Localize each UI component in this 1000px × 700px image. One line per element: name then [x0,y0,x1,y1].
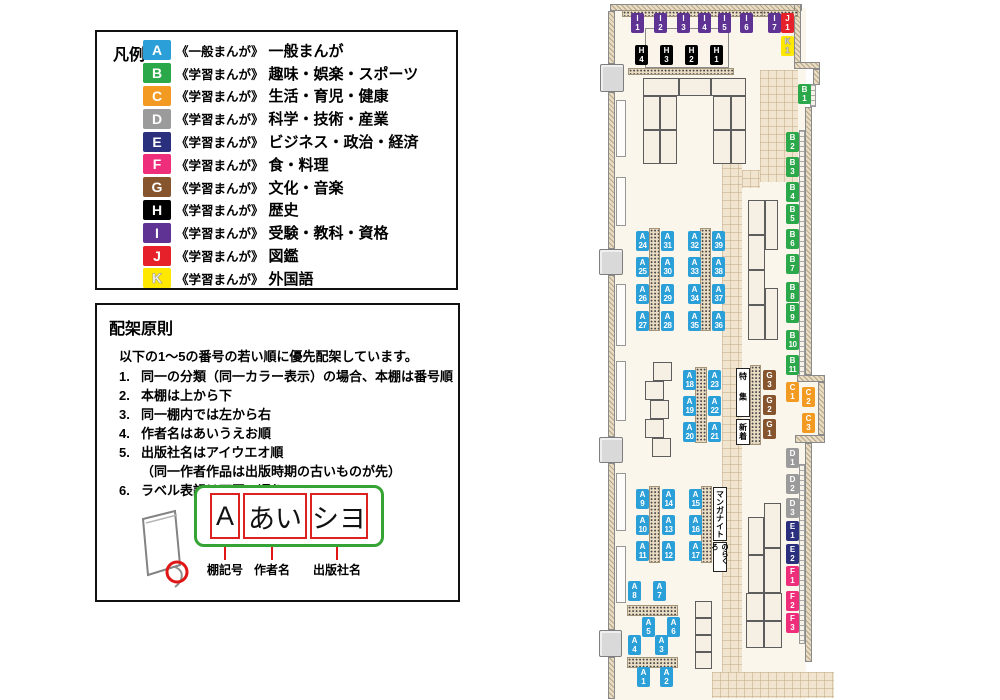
shelf-number: 10 [636,526,649,535]
shelf-label-A12: A12 [662,541,675,561]
shelf-cell [748,270,765,305]
shelf-number: 3 [786,168,799,177]
rule-5-note: （同一作者作品は出版時期の古いものが先） [119,462,455,481]
shelf-label-A30: A30 [661,257,674,277]
shelf-number: 3 [786,624,799,633]
shelf-label-A38: A38 [712,257,725,277]
shelf-cell [748,235,765,270]
shelf-cell [765,288,778,340]
shelf-number: 9 [636,500,649,509]
shelf-label-G3: G3 [763,370,776,390]
wall-shelf [799,464,805,644]
shelf-number: 6 [667,628,680,637]
shelf-cell [660,130,677,164]
shelf-label-A26: A26 [636,284,649,304]
window [616,177,626,226]
shelf-number: 1 [798,95,811,104]
rule-text: 同一棚内では左から右 [141,405,271,424]
shelf-number: 7 [768,24,781,33]
shelf-number: 2 [802,398,815,407]
shelf-label-A33: A33 [688,257,701,277]
shelf-number: 33 [688,268,701,277]
shelf-cell [748,517,764,555]
category-label: 図鑑 [269,245,299,266]
shelf-number: 20 [683,433,696,442]
book-icon [125,503,200,598]
shelf-label-H2: H2 [685,45,698,65]
category-label: 文化・音楽 [269,177,344,198]
shelf-label-A21: A21 [708,422,721,442]
shelf-cell [713,96,731,130]
wall-alcove [818,382,825,435]
category-label: 趣味・娯楽・スポーツ [269,63,419,84]
legend-item-J: J《学習まんが》図鑑 [143,244,452,267]
part-caption-3: 出版社名 [313,561,361,578]
shelf-label-B4: B4 [786,182,799,202]
rule-5: 5.出版社名はアイウエオ順 [119,443,455,462]
shelf-label-A16: A16 [689,515,702,535]
rule-6: 6.ラベル表記は下図の通り [119,481,455,500]
rule-2: 2.本棚は上から下 [119,386,455,405]
shelf-label-A7: A7 [653,581,666,601]
shelf-number: 8 [628,592,641,601]
part-caption-2: 作者名 [254,561,290,578]
shelf-cell [645,381,664,400]
shelf-label-A39: A39 [712,231,725,251]
shelf-number: 5 [786,215,799,224]
shelf-number: 13 [662,526,675,535]
shelf-cell [643,96,660,130]
principles-panel: 配架原則 以下の1～5の番号の若い順に優先配架しています。 1.同一の分類（同一… [95,303,460,602]
rule-number: 4. [119,424,141,443]
category-label: 受験・教科・資格 [269,222,389,243]
legend-panel: 凡例 A《一般まんが》一般まんがB《学習まんが》趣味・娯楽・スポーツC《学習まん… [95,30,458,290]
shelf-number: 11 [786,366,799,375]
rule-text: 本棚は上から下 [141,386,232,405]
shelf-cell [746,621,764,648]
category-chip-K: K [143,268,171,288]
legend-item-G: G《学習まんが》文化・音楽 [143,176,452,199]
shelf-label-F2: F2 [786,591,799,611]
shelf-label-E1: E1 [786,521,799,541]
shelf-label-A3: A3 [655,635,668,655]
area-label-のらくろ: のらくろ [713,542,727,572]
shelf-number: 22 [708,407,721,416]
shelf-number: 2 [786,602,799,611]
category-label: 一般まんが [269,40,344,61]
shelf-number: 3 [660,56,673,65]
shelf-label-A17: A17 [689,541,702,561]
wall-left [608,657,615,699]
shelf-number: 28 [661,322,674,331]
shelf-label-B1: B1 [798,84,811,104]
shelf-cell [643,78,679,96]
shelf-label-H3: H3 [660,45,673,65]
wall-shelf [799,130,805,376]
principles-intro: 以下の1～5の番号の若い順に優先配架しています。 [119,346,418,365]
shelf-label-A25: A25 [636,257,649,277]
shelf-cell [695,652,712,669]
series-label: 《学習まんが》 [176,64,264,83]
shelf-number: 32 [688,242,701,251]
category-label: ビジネス・政治・経済 [269,131,419,152]
shelf-number: 5 [642,628,655,637]
series-label: 《学習まんが》 [176,223,264,242]
category-label: 歴史 [269,199,299,220]
shelf-number: 12 [662,552,675,561]
shelf-label-B8: B8 [786,282,799,302]
shelf-number: 2 [786,555,799,564]
shelf-cell [746,593,764,621]
shelf-cell [650,400,669,419]
shelf-cell [748,555,764,593]
shelf-number: 26 [636,295,649,304]
shelf-number: 36 [712,322,725,331]
rule-number: 6. [119,481,141,500]
shelf-label-A32: A32 [688,231,701,251]
legend-rows: A《一般まんが》一般まんがB《学習まんが》趣味・娯楽・スポーツC《学習まんが》生… [143,39,452,290]
category-label: 外国語 [269,268,314,289]
shelf-strip [649,228,660,331]
window [616,473,626,531]
shelf-number: 2 [763,406,776,415]
shelf-number: 19 [683,407,696,416]
rule-text: 出版社名はアイウエオ順 [141,443,283,462]
rule-text: ラベル表記は下図の通り [141,481,284,500]
category-chip-H: H [143,200,171,220]
legend-title: 凡例 [113,41,145,65]
shelf-label-H1: H1 [710,45,723,65]
shelf-number: 4 [786,193,799,202]
shelf-cell [695,601,712,618]
series-label: 《学習まんが》 [176,132,264,151]
shelf-number: 1 [786,393,799,402]
wall-left [608,92,615,249]
door [600,64,624,92]
shelf-number: 1 [786,459,799,468]
shelf-number: 14 [662,500,675,509]
series-label: 《学習まんが》 [176,155,264,174]
shelf-label-A15: A15 [689,489,702,509]
rule-1: 1.同一の分類（同一カラー表示）の場合、本棚は番号順 [119,367,455,386]
shelf-cell [764,593,782,621]
legend-item-C: C《学習まんが》生活・育児・健康 [143,85,452,108]
shelf-label-I5: I5 [718,13,731,33]
shelf-number: 27 [636,322,649,331]
shelf-label-C2: C2 [802,387,815,407]
shelf-number: 5 [718,24,731,33]
shelf-label-A20: A20 [683,422,696,442]
category-chip-B: B [143,63,171,83]
area-label-マンガナイト: マンガナイト [713,487,727,541]
shelf-number: 17 [689,552,702,561]
shelf-number: 3 [802,424,815,433]
shelf-label-B10: B10 [786,330,799,350]
shelf-label-A13: A13 [662,515,675,535]
door [599,630,622,657]
category-chip-C: C [143,86,171,106]
wall-alcove [797,375,825,382]
shelf-label-B2: B2 [786,132,799,152]
shelf-number: 1 [786,577,799,586]
aisle-tiles [742,170,760,188]
shelf-number: 30 [661,268,674,277]
shelf-cell [764,503,781,548]
shelf-label-A5: A5 [642,617,655,637]
shelf-label-D3: D3 [786,498,799,518]
shelf-number: 2 [660,678,673,687]
shelf-cell [731,130,746,164]
shelf-number: 7 [786,265,799,274]
shelf-label-B5: B5 [786,204,799,224]
category-chip-G: G [143,177,171,197]
shelf-cell [713,130,731,164]
shelf-label-A14: A14 [662,489,675,509]
area-label-新着: 新着 [736,419,750,445]
shelf-number: 34 [688,295,701,304]
shelf-label-B11: B11 [786,355,799,375]
shelf-label-A2: A2 [660,667,673,687]
shelf-number: 1 [781,47,794,56]
shelf-strip [695,367,707,443]
shelf-number: 1 [781,24,794,33]
category-label: 科学・技術・産業 [269,108,389,129]
rule-number: 3. [119,405,141,424]
shelf-number: 2 [786,485,799,494]
shelf-number: 1 [763,430,776,439]
rule-text: 作者名はあいうえお順 [141,424,271,443]
shelf-cell [748,305,765,340]
area-label-特集: 特集 [736,368,750,417]
rules-list: 1.同一の分類（同一カラー表示）の場合、本棚は番号順2.本棚は上から下3.同一棚… [119,367,455,500]
shelf-cell [764,621,782,648]
shelf-label-J1: J1 [781,13,794,33]
shelf-number: 15 [689,500,702,509]
legend-item-A: A《一般まんが》一般まんが [143,39,452,62]
shelf-cell [660,96,677,130]
shelf-label-G1: G1 [763,419,776,439]
shelf-number: 16 [689,526,702,535]
shelf-label-B9: B9 [786,303,799,323]
shelf-cell [645,419,664,438]
shelf-cell [679,78,711,96]
series-label: 《学習まんが》 [176,178,264,197]
shelf-number: 3 [786,509,799,518]
wall-left [608,11,615,64]
category-chip-I: I [143,223,171,243]
shelf-label-F3: F3 [786,613,799,633]
shelf-label-A24: A24 [636,231,649,251]
rule-text: 同一の分類（同一カラー表示）の場合、本棚は番号順 [141,367,453,386]
shelf-number: 4 [628,646,641,655]
shelf-number: 25 [636,268,649,277]
shelf-label-A6: A6 [667,617,680,637]
rule-number: 1. [119,367,141,386]
shelf-label-C3: C3 [802,413,815,433]
window [616,361,626,421]
series-label: 《学習まんが》 [176,86,264,105]
rule-4: 4.作者名はあいうえお順 [119,424,455,443]
shelf-label-D1: D1 [786,448,799,468]
part-caption-1: 棚記号 [207,561,243,578]
category-label: 生活・育児・健康 [269,85,389,106]
series-label: 《一般まんが》 [176,41,264,60]
rule-3: 3.同一棚内では左から右 [119,405,455,424]
window [616,100,626,157]
wall-left [608,275,615,437]
shelf-label-I1: I1 [631,13,644,33]
shelf-label-G2: G2 [763,395,776,415]
wall-alcove [795,435,825,443]
legend-item-K: K《学習まんが》外国語 [143,267,452,290]
series-label: 《学習まんが》 [176,200,264,219]
legend-item-I: I《学習まんが》受験・教科・資格 [143,221,452,244]
wall-right [805,443,812,662]
series-label: 《学習まんが》 [176,246,264,265]
door [599,249,623,275]
shelf-number: 1 [710,56,723,65]
shelf-label-A29: A29 [661,284,674,304]
shelf-cell [653,362,672,381]
shelf-label-E2: E2 [786,544,799,564]
shelf-number: 4 [698,24,711,33]
shelf-label-A19: A19 [683,396,696,416]
shelf-label-A4: A4 [628,635,641,655]
pointer-line [271,547,273,560]
legend-item-B: B《学習まんが》趣味・娯楽・スポーツ [143,62,452,85]
shelf-cell [765,200,778,250]
window [616,284,626,346]
series-label: 《学習まんが》 [176,269,264,288]
shelf-label-I2: I2 [654,13,667,33]
shelf-label-A37: A37 [712,284,725,304]
shelf-number: 1 [631,24,644,33]
shelf-number: 3 [763,381,776,390]
shelf-number: 11 [636,552,649,561]
shelf-label-F1: F1 [786,566,799,586]
shelf-label-A22: A22 [708,396,721,416]
shelf-number: 6 [786,240,799,249]
shelf-label-A27: A27 [636,311,649,331]
shelf-label-A31: A31 [661,231,674,251]
shelf-label-I6: I6 [740,13,753,33]
shelf-number: 10 [786,341,799,350]
shelf-number: 3 [655,646,668,655]
shelf-number: 29 [661,295,674,304]
shelf-number: 9 [786,314,799,323]
floor-map: I1I2I3I4I5I6I7J1K1H4H3H2H1B1B2B3B4B5B6B7… [560,0,1000,700]
shelf-label-B7: B7 [786,254,799,274]
series-label: 《学習まんが》 [176,109,264,128]
shelf-number: 31 [661,242,674,251]
shelf-label-B3: B3 [786,157,799,177]
rule-number: 2. [119,386,141,405]
category-chip-F: F [143,154,171,174]
shelf-cell [731,96,746,130]
shelf-label-A18: A18 [683,370,696,390]
shelf-number: 18 [683,381,696,390]
shelf-label-I7: I7 [768,13,781,33]
pointer-line [224,547,226,560]
shelf-strip [627,605,678,616]
shelf-strip [649,486,660,563]
category-chip-D: D [143,109,171,129]
shelf-label-A11: A11 [636,541,649,561]
shelf-cell [643,130,660,164]
door [599,437,623,463]
shelf-cell [695,635,712,652]
principles-title: 配架原則 [109,315,173,339]
shelf-label-A8: A8 [628,581,641,601]
rule-number: 5. [119,443,141,462]
pointer-line [336,547,338,560]
shelf-label-A36: A36 [712,311,725,331]
shelf-number: 6 [740,24,753,33]
aisle-tiles [712,672,834,698]
category-chip-E: E [143,132,171,152]
shelf-number: 2 [654,24,667,33]
shelf-number: 2 [685,56,698,65]
shelf-cell [652,438,671,457]
shelf-label-I4: I4 [698,13,711,33]
shelf-label-C1: C1 [786,382,799,402]
shelf-number: 3 [677,24,690,33]
shelf-label-A10: A10 [636,515,649,535]
shelf-number: 39 [712,242,725,251]
window [616,546,626,603]
shelf-label-I3: I3 [677,13,690,33]
shelf-cell [695,618,712,635]
legend-item-F: F《学習まんが》食・料理 [143,153,452,176]
legend-item-H: H《学習まんが》歴史 [143,199,452,222]
label-position-circle [167,562,187,582]
shelf-number: 1 [637,678,650,687]
shelf-number: 8 [786,293,799,302]
shelf-label-A23: A23 [708,370,721,390]
wall-left [608,463,615,630]
shelf-number: 24 [636,242,649,251]
shelf-label-A34: A34 [688,284,701,304]
category-chip-J: J [143,246,171,266]
shelf-number: 37 [712,295,725,304]
wall-right [805,107,812,375]
legend-item-E: E《学習まんが》ビジネス・政治・経済 [143,130,452,153]
shelf-cell [764,548,781,593]
shelf-cell [748,200,765,235]
shelf-number: 21 [708,433,721,442]
shelf-number: 4 [635,56,648,65]
shelf-number: 23 [708,381,721,390]
shelf-label-A1: A1 [637,667,650,687]
shelf-number: 38 [712,268,725,277]
shelf-strip [700,228,711,331]
shelf-label-A9: A9 [636,489,649,509]
shelf-label-A35: A35 [688,311,701,331]
shelf-label-B6: B6 [786,229,799,249]
shelf-number: 35 [688,322,701,331]
category-label: 食・料理 [269,154,329,175]
shelf-cell [711,78,746,96]
shelf-label-H4: H4 [635,45,648,65]
shelf-label-D2: D2 [786,474,799,494]
shelf-strip [750,365,761,445]
shelf-label-K1: K1 [781,36,794,56]
wall-right [794,62,820,69]
wall-right [813,69,820,85]
shelf-number: 7 [653,592,666,601]
shelf-number: 1 [786,532,799,541]
shelf-number: 2 [786,143,799,152]
